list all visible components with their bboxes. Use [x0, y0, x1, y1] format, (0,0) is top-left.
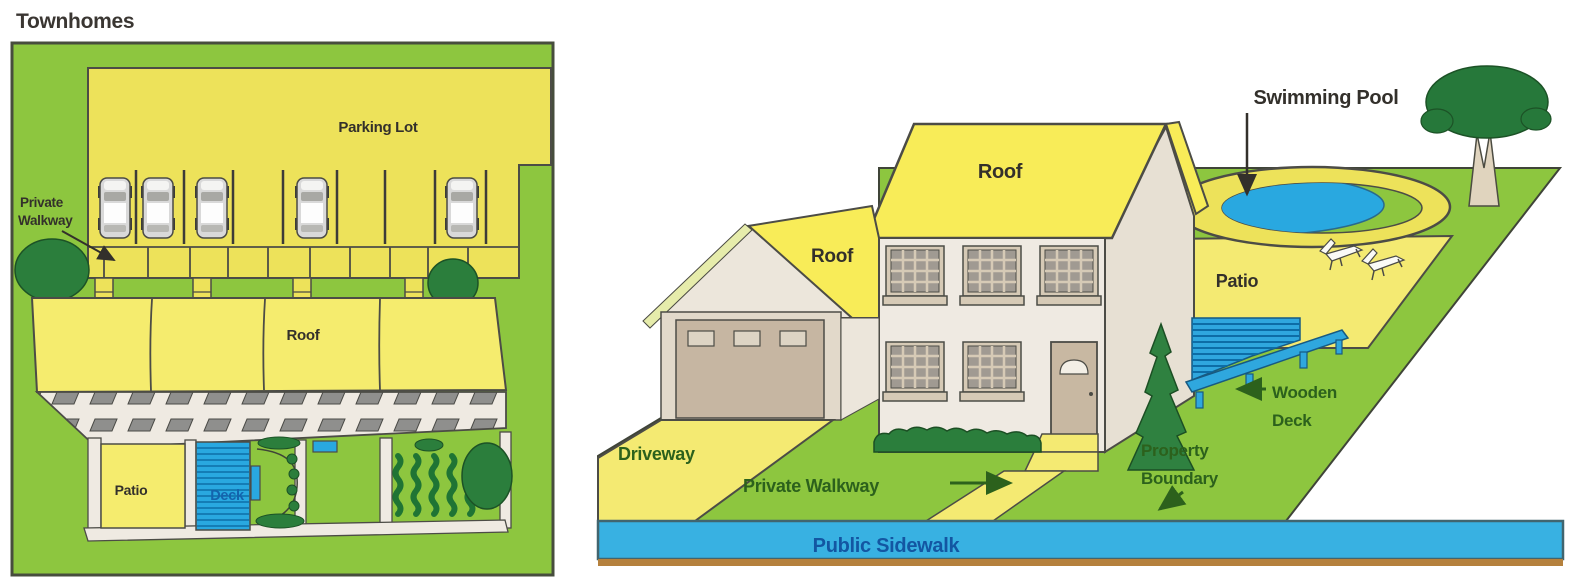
deck-label: Deck	[210, 488, 245, 504]
window	[960, 246, 1024, 305]
public-sidewalk-label: Public Sidewalk	[813, 535, 961, 557]
parking-lot-label: Parking Lot	[338, 119, 418, 136]
window	[960, 342, 1024, 401]
garage-door-window	[734, 331, 760, 346]
public-sidewalk	[598, 521, 1563, 566]
patio-label: Patio	[115, 482, 148, 498]
driveway-label: Driveway	[618, 444, 695, 464]
property-boundary-label-line1: Property	[1141, 441, 1209, 460]
window	[1037, 246, 1101, 305]
parked-car	[141, 178, 175, 238]
scene: Townhomes	[0, 0, 1578, 584]
single-family-home-illustration: Swimming Pool Roof Roof Patio Driveway P…	[598, 66, 1563, 566]
roof-main-label: Roof	[978, 161, 1023, 183]
garage	[643, 206, 879, 420]
townhome-deck	[196, 442, 260, 530]
swimming-pool-label: Swimming Pool	[1254, 87, 1399, 109]
private-walkway-label: Private Walkway	[743, 476, 879, 496]
parked-car	[195, 178, 229, 238]
parked-car	[295, 178, 329, 238]
wooden-deck-label-line1: Wooden	[1272, 383, 1337, 402]
townhomes-title: Townhomes	[16, 10, 134, 33]
deck-post	[1300, 352, 1307, 368]
deck-post	[1336, 340, 1342, 354]
patio-label: Patio	[1216, 271, 1259, 291]
front-door	[1051, 342, 1097, 439]
wooden-deck-label-line2: Deck	[1272, 411, 1312, 430]
garage-door-window	[780, 331, 806, 346]
deck-post	[1196, 392, 1203, 408]
window	[883, 246, 947, 305]
private-walkway-label-line1: Private	[20, 195, 64, 210]
bush	[15, 239, 89, 301]
property-boundary-label-line2: Boundary	[1141, 469, 1219, 488]
yard-blue-bench	[313, 441, 337, 452]
garage-door-window	[688, 331, 714, 346]
roof-garage-label: Roof	[811, 246, 854, 267]
parked-car	[98, 178, 132, 238]
window	[883, 342, 947, 401]
roof-label: Roof	[287, 327, 321, 344]
bush	[415, 439, 443, 451]
bush	[462, 443, 512, 509]
townhome-roofs	[32, 298, 506, 392]
parked-car	[445, 178, 479, 238]
townhomes-illustration: Townhomes	[12, 10, 553, 575]
private-walkway-label-line2: Walkway	[18, 213, 73, 228]
